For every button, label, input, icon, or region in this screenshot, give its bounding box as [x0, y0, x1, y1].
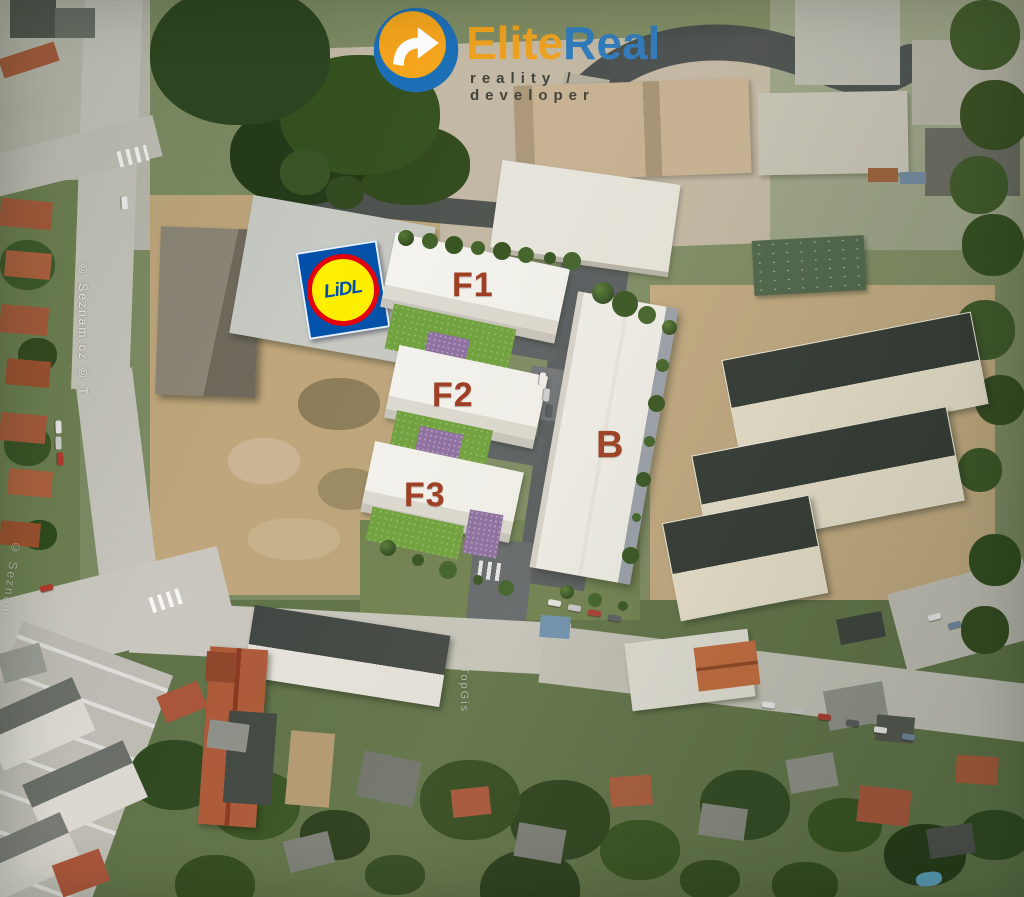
tree-row-south	[380, 540, 396, 556]
elitereal-globe-arrow-icon	[372, 6, 460, 94]
dirt-patch	[248, 518, 340, 560]
forest-top-right-edge	[950, 0, 1020, 70]
tree-row-north	[398, 230, 414, 246]
building-label-f3: F3	[404, 476, 446, 515]
building-label-f2: F2	[432, 376, 474, 415]
building-label-f1: F1	[452, 266, 494, 305]
garden-patch	[285, 730, 335, 808]
red-roof-tower	[205, 651, 237, 683]
orange-roof-house	[694, 640, 761, 691]
crosswalk	[477, 560, 505, 581]
house-roof	[609, 775, 653, 808]
elitereal-tagline: reality / developer	[470, 70, 682, 104]
industrial-roof-1	[757, 91, 908, 176]
container-blue	[900, 172, 926, 184]
house-roof	[451, 786, 492, 818]
dirt-patch	[298, 378, 380, 430]
car	[121, 196, 128, 209]
elitereal-wordmark-real: Real	[563, 17, 660, 69]
rowhouse-roof	[0, 198, 53, 230]
tree-row-b-east	[662, 320, 677, 335]
tree-group-b-north	[592, 282, 614, 304]
elitereal-logo: EliteReal reality / developer	[372, 4, 682, 100]
top-left-roof	[55, 8, 95, 38]
house-roof	[926, 823, 976, 859]
container-red	[868, 168, 898, 182]
blue-shed	[539, 615, 570, 639]
car	[57, 452, 63, 465]
industrial-roof-3	[795, 0, 900, 85]
rowhouse-roof	[4, 250, 52, 280]
trees-site-entry	[280, 150, 330, 195]
house-roof	[206, 719, 250, 752]
tree-row-b-south	[560, 585, 574, 599]
house-roof	[856, 785, 911, 826]
watermark-topgis: © TopGis	[458, 648, 470, 713]
rowhouse-roof	[7, 468, 53, 498]
house-roof	[698, 803, 748, 841]
building-label-b: B	[596, 424, 624, 467]
car	[55, 436, 61, 449]
green-roof-building	[752, 235, 867, 296]
watermark-seznam-upper: © Seznam.cz © T	[76, 262, 90, 396]
aerial-site-plan: LiDL	[0, 0, 1024, 897]
car	[55, 420, 61, 433]
dirt-patch	[228, 438, 300, 484]
top-left-dark-roof	[10, 0, 56, 38]
forest-top-left	[150, 0, 330, 125]
rowhouse-roof	[0, 412, 47, 444]
elitereal-wordmark: EliteReal	[466, 16, 660, 70]
rowhouse-roof	[5, 358, 51, 388]
industrial-roof-dark	[925, 128, 1020, 196]
house-roof	[955, 755, 999, 786]
lidl-wordmark: LiDL	[322, 276, 363, 304]
lidl-logo: LiDL	[296, 240, 391, 340]
rowhouse-roof	[0, 304, 49, 336]
lidl-logo-circle: LiDL	[302, 249, 384, 331]
elitereal-wordmark-elite: Elite	[466, 17, 563, 69]
